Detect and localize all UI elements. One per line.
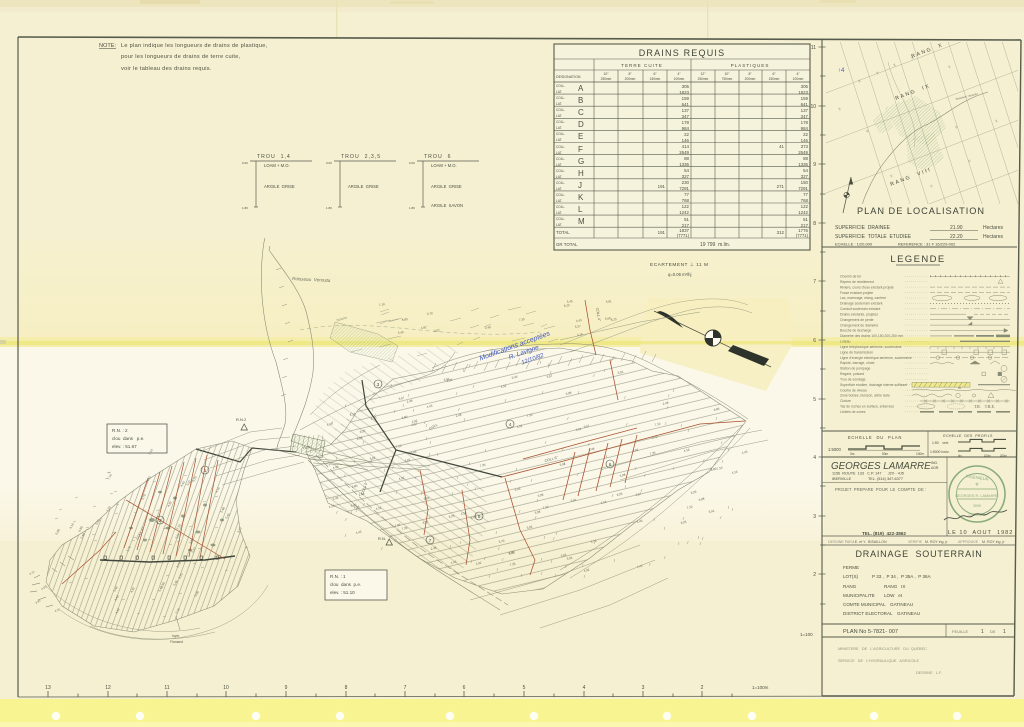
svg-text:11: 11 bbox=[164, 685, 169, 691]
svg-text:1.80: 1.80 bbox=[409, 206, 415, 210]
svg-text:22.20: 22.20 bbox=[950, 234, 963, 240]
svg-text:150mm: 150mm bbox=[769, 77, 780, 81]
svg-text:641: 641 bbox=[801, 102, 809, 107]
svg-text:1336: 1336 bbox=[679, 162, 689, 167]
svg-text:Tas de roches en surface, ente: Tas de roches en surface, enterrees bbox=[840, 405, 894, 409]
svg-text:ARGILE GRISE: ARGILE GRISE bbox=[431, 184, 462, 189]
svg-text:0.00: 0.00 bbox=[242, 161, 248, 165]
svg-text:271: 271 bbox=[777, 184, 785, 189]
svg-text:3: 3 bbox=[377, 382, 380, 387]
svg-text:J.E. et Y. BISAILLON: J.E. et Y. BISAILLON bbox=[852, 540, 887, 544]
svg-text:Flamand: Flamand bbox=[170, 640, 183, 644]
svg-text:50m: 50m bbox=[882, 452, 889, 456]
svg-text:Lac, marecage, etang, carriere: Lac, marecage, etang, carriere bbox=[840, 296, 886, 300]
svg-text:1=100m: 1=100m bbox=[752, 685, 769, 690]
svg-text:1823: 1823 bbox=[679, 90, 689, 95]
svg-text:11: 11 bbox=[811, 45, 816, 51]
svg-text:DRAINS REQUIS: DRAINS REQUIS bbox=[639, 48, 726, 58]
svg-text:pour les longueurs de drains d: pour les longueurs de drains de terre cu… bbox=[121, 54, 241, 60]
svg-text:elev. : 51.10: elev. : 51.10 bbox=[330, 590, 355, 595]
svg-text:M. ROY ing. jr: M. ROY ing. jr bbox=[925, 540, 948, 544]
svg-text:1: 1 bbox=[981, 629, 984, 635]
svg-text:COLL.: COLL. bbox=[556, 217, 565, 221]
svg-text:22: 22 bbox=[803, 132, 808, 137]
svg-text:P 33 , P 34 , P 35A , P 36A: P 33 , P 34 , P 35A , P 36A bbox=[872, 574, 932, 579]
svg-text:Superficie etudiee, drainage i: Superficie etudiee, drainage interne suf… bbox=[840, 383, 907, 387]
svg-text:5: 5 bbox=[813, 397, 816, 403]
svg-text:ARGILE GRISE: ARGILE GRISE bbox=[348, 184, 379, 189]
svg-text:LAT.: LAT. bbox=[556, 90, 562, 94]
svg-text:elev. : 51.67: elev. : 51.67 bbox=[112, 444, 137, 449]
svg-text:LAT.: LAT. bbox=[556, 199, 562, 203]
svg-text:(7771): (7771) bbox=[677, 233, 690, 238]
svg-text:Hectares: Hectares bbox=[983, 225, 1004, 231]
svg-text:1=100: 1=100 bbox=[800, 632, 813, 637]
svg-text:C: C bbox=[578, 108, 584, 117]
svg-text:⚜: ⚜ bbox=[975, 482, 979, 488]
svg-text:8: 8 bbox=[813, 221, 816, 227]
svg-text:10: 10 bbox=[810, 104, 816, 110]
svg-text:GEORGES R. LAMARRE: GEORGES R. LAMARRE bbox=[955, 494, 999, 498]
svg-text:1242: 1242 bbox=[679, 210, 689, 215]
svg-text:1.80: 1.80 bbox=[242, 206, 248, 210]
svg-text:159: 159 bbox=[682, 96, 690, 101]
svg-text:COLL.: COLL. bbox=[556, 193, 565, 197]
svg-text:FERME: FERME bbox=[843, 565, 859, 570]
svg-text:ECARTEMENT ⊥ 11 M: ECARTEMENT ⊥ 11 M bbox=[650, 262, 709, 268]
svg-text:G: G bbox=[578, 157, 584, 166]
svg-text:TROU 6: TROU 6 bbox=[424, 154, 451, 160]
svg-text:DESSINE PAR: DESSINE PAR bbox=[828, 540, 852, 544]
svg-text:Loteau: Loteau bbox=[840, 340, 850, 344]
svg-text:250mm: 250mm bbox=[698, 77, 709, 81]
svg-text:Chemin de fer: Chemin de fer bbox=[840, 275, 862, 279]
svg-text:SUPERFICIE DRAINEE: SUPERFICIE DRAINEE bbox=[835, 225, 891, 231]
svg-text:TROU 1,4: TROU 1,4 bbox=[257, 154, 291, 160]
svg-text:768: 768 bbox=[682, 198, 690, 203]
svg-text:E: E bbox=[578, 132, 583, 141]
svg-text:7.10: 7.10 bbox=[379, 302, 386, 307]
svg-text:10": 10" bbox=[725, 72, 731, 76]
svg-text:B: B bbox=[578, 96, 583, 105]
svg-text:DE: DE bbox=[990, 629, 996, 634]
svg-text:305: 305 bbox=[682, 84, 690, 89]
svg-text:Diametre des drains 100,150,20: Diametre des drains 100,150,200,250 mm bbox=[840, 334, 904, 338]
svg-text:178: 178 bbox=[801, 120, 809, 125]
svg-text:146: 146 bbox=[682, 138, 690, 143]
svg-text:LAT.: LAT. bbox=[556, 163, 562, 167]
svg-text:750mm: 750mm bbox=[722, 77, 733, 81]
svg-text:159: 159 bbox=[801, 96, 809, 101]
svg-text:H: H bbox=[578, 169, 584, 178]
svg-text:88: 88 bbox=[803, 156, 808, 161]
svg-text:COLL.: COLL. bbox=[556, 84, 565, 88]
svg-text:IBERVILLE TEL.: IBERVILLE TEL. (514) 347-6377 bbox=[832, 477, 903, 481]
svg-text:q=0.06 m³/hj: q=0.06 m³/hj bbox=[668, 272, 691, 277]
svg-text:A.P.: A.P. bbox=[303, 445, 311, 450]
svg-text:Ligne d'energie electrique aer: Ligne d'energie electrique aerienne, sou… bbox=[840, 356, 912, 360]
svg-text:2: 2 bbox=[813, 572, 816, 578]
svg-text:LOAM + M.O.: LOAM + M.O. bbox=[431, 163, 457, 168]
svg-text:TOTAL: TOTAL bbox=[556, 230, 570, 235]
svg-text:8: 8 bbox=[345, 685, 348, 691]
svg-text:Drains existants, projetes: Drains existants, projetes bbox=[840, 312, 878, 316]
svg-text:PLAN No 5-7821- 007: PLAN No 5-7821- 007 bbox=[843, 629, 898, 635]
svg-text:LAT.: LAT. bbox=[556, 187, 562, 191]
svg-text:PLASTIQUES: PLASTIQUES bbox=[731, 63, 770, 68]
svg-text:VERIFIE: VERIFIE bbox=[908, 540, 923, 544]
svg-text:1:50 vert.: 1:50 vert. bbox=[932, 441, 949, 445]
svg-text:1: 1 bbox=[1003, 629, 1006, 635]
svg-text:COLL.: COLL. bbox=[556, 120, 565, 124]
svg-text:Le plan indique les longueurs: Le plan indique les longueurs de drains … bbox=[121, 43, 268, 49]
svg-text:clou dans p.e.: clou dans p.e. bbox=[330, 582, 361, 587]
svg-text:ARGILE SAVON: ARGILE SAVON bbox=[431, 203, 463, 208]
svg-text:250mm: 250mm bbox=[601, 77, 612, 81]
svg-text:5.91: 5.91 bbox=[606, 299, 613, 304]
svg-text:COLL.: COLL. bbox=[556, 96, 565, 100]
svg-text:88: 88 bbox=[684, 156, 689, 161]
svg-text:100mm: 100mm bbox=[793, 77, 804, 81]
svg-text:Zone boisee, buisson, arbre is: Zone boisee, buisson, arbre isole bbox=[840, 394, 890, 398]
svg-text:Ligne telephonique aerienne, s: Ligne telephonique aerienne, souterraine bbox=[840, 345, 902, 349]
svg-text:L: L bbox=[578, 205, 583, 214]
svg-text:↑4: ↑4 bbox=[838, 68, 845, 74]
svg-text:ECHELLE DES PROFILS: ECHELLE DES PROFILS bbox=[943, 434, 993, 438]
svg-text:137: 137 bbox=[682, 108, 690, 113]
svg-text:6: 6 bbox=[609, 462, 612, 467]
svg-text:12": 12" bbox=[701, 72, 707, 76]
svg-text:414: 414 bbox=[682, 144, 690, 149]
svg-text:RANG: RANG bbox=[843, 584, 857, 589]
svg-text:6.80: 6.80 bbox=[402, 317, 409, 322]
svg-text:SUPERFICIE TOTALE ETUDIEE: SUPERFICIE TOTALE ETUDIEE bbox=[835, 234, 912, 240]
svg-text:ECHELLE : 1/20,000: ECHELLE : 1/20,000 bbox=[835, 242, 873, 247]
svg-text:3: 3 bbox=[642, 685, 645, 691]
svg-text:Repere de nivellement: Repere de nivellement bbox=[840, 280, 874, 284]
svg-text:R.N. : 2: R.N. : 2 bbox=[112, 428, 128, 433]
svg-text:LAT.: LAT. bbox=[556, 138, 562, 142]
svg-text:COLL.: COLL. bbox=[556, 205, 565, 209]
svg-text:7.35: 7.35 bbox=[519, 317, 526, 322]
svg-text:51: 51 bbox=[803, 217, 808, 222]
svg-text:1:5000 horiz.: 1:5000 horiz. bbox=[930, 450, 950, 454]
svg-text:LAT.: LAT. bbox=[556, 151, 562, 155]
svg-text:54: 54 bbox=[803, 168, 808, 173]
svg-text:Changement de diametre: Changement de diametre bbox=[840, 323, 878, 327]
svg-text:loyer: loyer bbox=[172, 634, 180, 638]
svg-text:GATINEAU: GATINEAU bbox=[897, 611, 920, 616]
svg-text:LOW et: LOW et bbox=[884, 593, 903, 598]
svg-text:Courbe de niveau: Courbe de niveau bbox=[840, 388, 867, 392]
svg-text:2.48: 2.48 bbox=[485, 325, 492, 330]
svg-text:ING.: ING. bbox=[931, 461, 938, 465]
svg-text:TERRE CUITE: TERRE CUITE bbox=[621, 63, 663, 68]
svg-text:3099: 3099 bbox=[973, 504, 981, 508]
svg-text:Riviere, cours d'eau existant: Riviere, cours d'eau existant projete bbox=[840, 285, 894, 289]
svg-text:5: 5 bbox=[478, 514, 481, 519]
svg-text:Changement de pente: Changement de pente bbox=[840, 318, 874, 322]
svg-text:3.70: 3.70 bbox=[427, 311, 434, 316]
svg-text:DESSINE L.F.: DESSINE L.F. bbox=[916, 671, 942, 675]
svg-text:7: 7 bbox=[404, 685, 407, 691]
svg-text:305: 305 bbox=[801, 84, 809, 89]
svg-text:327: 327 bbox=[801, 174, 809, 179]
svg-text:Trou de sondage: Trou de sondage bbox=[840, 378, 866, 382]
svg-text:200m: 200m bbox=[1000, 454, 1008, 458]
svg-text:A: A bbox=[578, 84, 584, 93]
svg-text:NOTE:: NOTE: bbox=[99, 43, 117, 49]
svg-text:12: 12 bbox=[105, 685, 111, 691]
svg-text:7: 7 bbox=[813, 279, 816, 285]
svg-text:LOT(S): LOT(S) bbox=[843, 574, 859, 579]
svg-text:Conduit souterrain existant: Conduit souterrain existant bbox=[840, 307, 880, 311]
svg-text:1156 ROUTE 133 C.P. 147: 1156 ROUTE 133 C.P. 147 J2X - 4J5 bbox=[832, 472, 904, 476]
svg-text:DESIGNATION: DESIGNATION bbox=[556, 75, 581, 79]
svg-text:Limites de zones: Limites de zones bbox=[840, 410, 866, 414]
svg-text:6: 6 bbox=[813, 338, 816, 344]
svg-text:100mm: 100mm bbox=[674, 77, 685, 81]
svg-text:6.25: 6.25 bbox=[611, 317, 618, 322]
svg-text:TROU 2,3,5: TROU 2,3,5 bbox=[341, 154, 381, 160]
svg-text:M: M bbox=[578, 217, 585, 226]
svg-text:AGR.: AGR. bbox=[931, 466, 939, 470]
svg-text:Cloture: Cloture bbox=[840, 399, 851, 403]
svg-text:DRAINAGE SOUTERRAIN: DRAINAGE SOUTERRAIN bbox=[855, 549, 982, 559]
svg-text:10: 10 bbox=[223, 685, 229, 691]
svg-text:COLL.: COLL. bbox=[556, 145, 565, 149]
svg-text:Bouche de decharge: Bouche de decharge bbox=[840, 329, 871, 333]
svg-text:SERVICE DE L'HYDRAULIQUE: SERVICE DE L'HYDRAULIQUE AGRICOLE bbox=[838, 659, 920, 663]
svg-text:D: D bbox=[578, 120, 584, 129]
svg-text:5.45: 5.45 bbox=[398, 330, 405, 335]
svg-text:4.16: 4.16 bbox=[577, 332, 584, 337]
svg-text:COLL.: COLL. bbox=[556, 169, 565, 173]
svg-text:(7771): (7771) bbox=[796, 233, 809, 238]
svg-text:RANG IX: RANG IX bbox=[884, 584, 905, 589]
svg-text:54: 54 bbox=[684, 168, 689, 173]
svg-text:LAT.: LAT. bbox=[556, 126, 562, 130]
svg-text:MINISTERE DE L'AGRICULTURE: MINISTERE DE L'AGRICULTURE DU QUEBEC bbox=[838, 647, 927, 651]
svg-text:51: 51 bbox=[684, 217, 689, 222]
svg-text:COLL.: COLL. bbox=[556, 108, 565, 112]
svg-text:Fosse existant projete: Fosse existant projete bbox=[840, 291, 873, 295]
svg-text:5.57: 5.57 bbox=[575, 324, 582, 329]
svg-text:GEORGES LAMARRE: GEORGES LAMARRE bbox=[831, 461, 931, 472]
svg-text:4: 4 bbox=[583, 685, 586, 691]
svg-text:373: 373 bbox=[801, 144, 809, 149]
svg-text:641: 641 bbox=[682, 102, 690, 107]
svg-text:COLL.: COLL. bbox=[556, 157, 565, 161]
svg-text:4.43: 4.43 bbox=[576, 318, 583, 323]
svg-text:LOAM + M.O.: LOAM + M.O. bbox=[264, 163, 290, 168]
svg-text:LAT.: LAT. bbox=[556, 102, 562, 106]
svg-text:4: 4 bbox=[813, 455, 816, 461]
svg-text:19 799 m.lin.: 19 799 m.lin. bbox=[700, 242, 730, 248]
svg-text:Station de pompage: Station de pompage bbox=[840, 367, 870, 371]
svg-text:1823: 1823 bbox=[798, 90, 808, 95]
svg-text:K: K bbox=[578, 193, 584, 202]
svg-text:1336: 1336 bbox=[798, 162, 808, 167]
svg-text:150: 150 bbox=[801, 180, 809, 185]
svg-text:1:5000: 1:5000 bbox=[828, 447, 841, 452]
svg-text:LEGENDE: LEGENDE bbox=[890, 254, 945, 265]
svg-text:REFERENCE : 31 F 16/229-002: REFERENCE : 31 F 16/229-002 bbox=[898, 242, 956, 247]
svg-text:100m: 100m bbox=[916, 452, 924, 456]
svg-text:GATINEAU: GATINEAU bbox=[890, 602, 913, 607]
svg-text:2: 2 bbox=[701, 685, 704, 691]
svg-text:191: 191 bbox=[658, 184, 666, 189]
svg-text:R.N. : 1: R.N. : 1 bbox=[330, 574, 346, 579]
svg-text:312: 312 bbox=[777, 230, 785, 235]
svg-text:77: 77 bbox=[684, 192, 689, 197]
svg-text:200mm: 200mm bbox=[625, 77, 636, 81]
svg-text:3: 3 bbox=[813, 514, 816, 520]
svg-text:178: 178 bbox=[682, 120, 690, 125]
svg-text:22: 22 bbox=[684, 132, 689, 137]
svg-text:Regard, puisard: Regard, puisard bbox=[840, 372, 864, 376]
svg-text:5: 5 bbox=[523, 685, 526, 691]
svg-text:LAT.: LAT. bbox=[556, 175, 562, 179]
svg-text:Rapide, barrage, chute: Rapide, barrage, chute bbox=[840, 361, 875, 365]
svg-text:7: 7 bbox=[429, 538, 432, 543]
svg-text:122: 122 bbox=[682, 204, 690, 209]
svg-text:ARGILE GRISE: ARGILE GRISE bbox=[264, 184, 295, 189]
svg-text:FEUILLE: FEUILLE bbox=[952, 629, 969, 634]
svg-text:0.00: 0.00 bbox=[409, 161, 415, 165]
svg-text:6: 6 bbox=[463, 685, 466, 691]
svg-text:0m: 0m bbox=[850, 452, 855, 456]
svg-text:13: 13 bbox=[45, 685, 51, 691]
svg-text:7291: 7291 bbox=[679, 186, 689, 191]
svg-text:85: 85 bbox=[958, 386, 962, 390]
svg-text:10": 10" bbox=[604, 72, 610, 76]
svg-text:M. ROY ing. jr: M. ROY ing. jr bbox=[982, 540, 1005, 544]
svg-text:ECHELLE DU PLAN: ECHELLE DU PLAN bbox=[848, 435, 902, 440]
svg-text:6.25: 6.25 bbox=[564, 303, 571, 308]
svg-text:150mm: 150mm bbox=[650, 77, 661, 81]
svg-text:200mm: 200mm bbox=[745, 77, 756, 81]
svg-text:2649: 2649 bbox=[679, 150, 689, 155]
svg-text:Ligne de transmission: Ligne de transmission bbox=[840, 350, 873, 354]
svg-text:LAT.: LAT. bbox=[556, 114, 562, 118]
svg-text:LAT.: LAT. bbox=[556, 223, 562, 227]
svg-text:0m: 0m bbox=[958, 454, 963, 458]
svg-text:137: 137 bbox=[801, 108, 809, 113]
svg-text:9: 9 bbox=[813, 162, 816, 168]
svg-text:2: 2 bbox=[159, 518, 162, 523]
svg-text:0.00: 0.00 bbox=[326, 161, 332, 165]
svg-text:LE 10 AOUT 1982: LE 10 AOUT 1982 bbox=[948, 530, 1013, 536]
svg-text:9: 9 bbox=[285, 685, 288, 691]
svg-text:F: F bbox=[578, 145, 583, 154]
svg-text:191: 191 bbox=[658, 230, 666, 235]
svg-text:COLL.: COLL. bbox=[556, 181, 565, 185]
svg-text:T.R. T.R.E.: T.R. T.R.E. bbox=[974, 404, 995, 409]
svg-text:TEL. (819) 422-3862: TEL. (819) 422-3862 bbox=[862, 531, 906, 536]
svg-text:77: 77 bbox=[803, 192, 808, 197]
svg-text:41: 41 bbox=[779, 144, 784, 149]
svg-text:DISTRICT ELECTORAL: DISTRICT ELECTORAL bbox=[843, 611, 893, 616]
svg-text:2649: 2649 bbox=[798, 150, 808, 155]
svg-text:146: 146 bbox=[801, 138, 809, 143]
svg-text:voir le tableau des drains req: voir le tableau des drains requis. bbox=[121, 66, 212, 72]
svg-text:PROJET PREPARE POUR LE COM: PROJET PREPARE POUR LE COMPTE DE : bbox=[835, 487, 926, 492]
svg-text:327: 327 bbox=[682, 174, 690, 179]
svg-text:PLAN DE LOCALISATION: PLAN DE LOCALISATION bbox=[857, 206, 985, 216]
svg-text:R.N.: R.N. bbox=[378, 536, 386, 541]
svg-text:R.N.2: R.N.2 bbox=[236, 417, 247, 422]
svg-text:COLL.: COLL. bbox=[556, 132, 565, 136]
svg-text:1.80: 1.80 bbox=[326, 206, 332, 210]
svg-text:347: 347 bbox=[682, 114, 690, 119]
svg-text:230: 230 bbox=[682, 180, 690, 185]
svg-text:APPROUVE: APPROUVE bbox=[958, 540, 979, 544]
svg-text:clou dans p.e.: clou dans p.e. bbox=[112, 436, 144, 441]
svg-text:1: 1 bbox=[204, 468, 207, 473]
svg-text:COMTE MUNICIPAL: COMTE MUNICIPAL bbox=[843, 602, 886, 607]
svg-text:J: J bbox=[578, 181, 582, 190]
svg-text:7291: 7291 bbox=[798, 186, 808, 191]
svg-text:122: 122 bbox=[801, 204, 809, 209]
svg-text:347: 347 bbox=[801, 114, 809, 119]
svg-text:LAT.: LAT. bbox=[556, 211, 562, 215]
svg-text:21.90: 21.90 bbox=[950, 225, 963, 231]
svg-text:100m: 100m bbox=[984, 454, 992, 458]
svg-text:Hectares: Hectares bbox=[983, 234, 1004, 240]
svg-text:GR TOTAL: GR TOTAL bbox=[556, 242, 578, 247]
svg-text:1242: 1242 bbox=[798, 210, 808, 215]
svg-text:Drainage souterrain existant: Drainage souterrain existant bbox=[840, 302, 882, 306]
svg-text:MUNICIPALITE: MUNICIPALITE bbox=[843, 593, 875, 598]
svg-text:4.92: 4.92 bbox=[421, 325, 428, 330]
svg-text:768: 768 bbox=[801, 198, 809, 203]
svg-text:984: 984 bbox=[682, 126, 690, 131]
svg-text:3.02: 3.02 bbox=[434, 328, 441, 333]
svg-text:984: 984 bbox=[801, 126, 809, 131]
